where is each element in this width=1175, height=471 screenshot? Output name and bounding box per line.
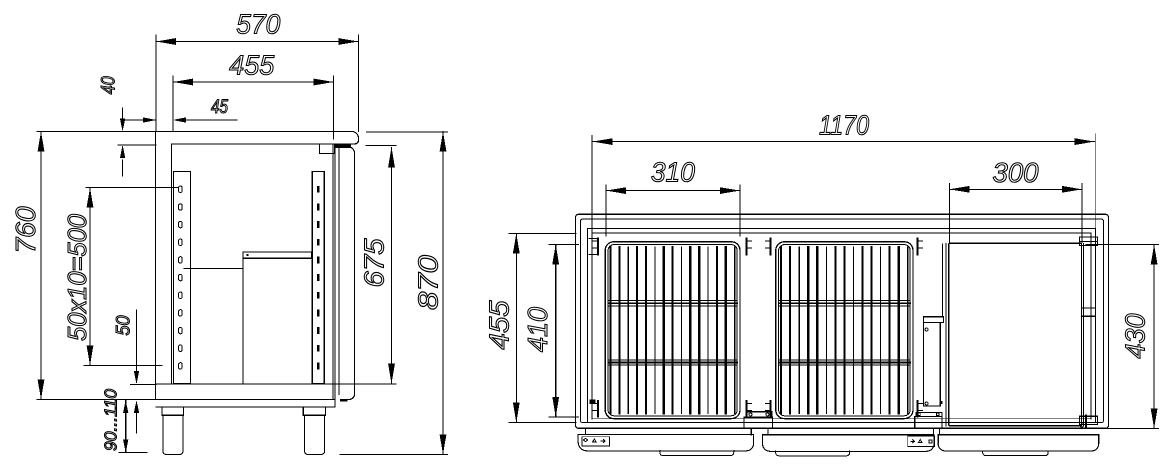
- svg-text:675: 675: [359, 238, 390, 288]
- svg-text:455: 455: [229, 50, 275, 81]
- svg-text:760: 760: [10, 206, 41, 254]
- svg-text:455: 455: [484, 300, 515, 350]
- svg-text:570: 570: [236, 9, 281, 40]
- svg-text:430: 430: [1120, 313, 1151, 359]
- svg-text:1170: 1170: [819, 109, 870, 140]
- svg-text:50: 50: [114, 315, 135, 335]
- svg-text:50x10=500: 50x10=500: [64, 214, 92, 341]
- svg-text:310: 310: [651, 157, 696, 188]
- svg-text:300: 300: [993, 157, 1040, 188]
- svg-text:45: 45: [211, 97, 228, 118]
- svg-text:40: 40: [99, 76, 120, 94]
- svg-text:870: 870: [413, 254, 444, 310]
- svg-text:90...110: 90...110: [101, 389, 121, 451]
- svg-text:410: 410: [522, 306, 553, 352]
